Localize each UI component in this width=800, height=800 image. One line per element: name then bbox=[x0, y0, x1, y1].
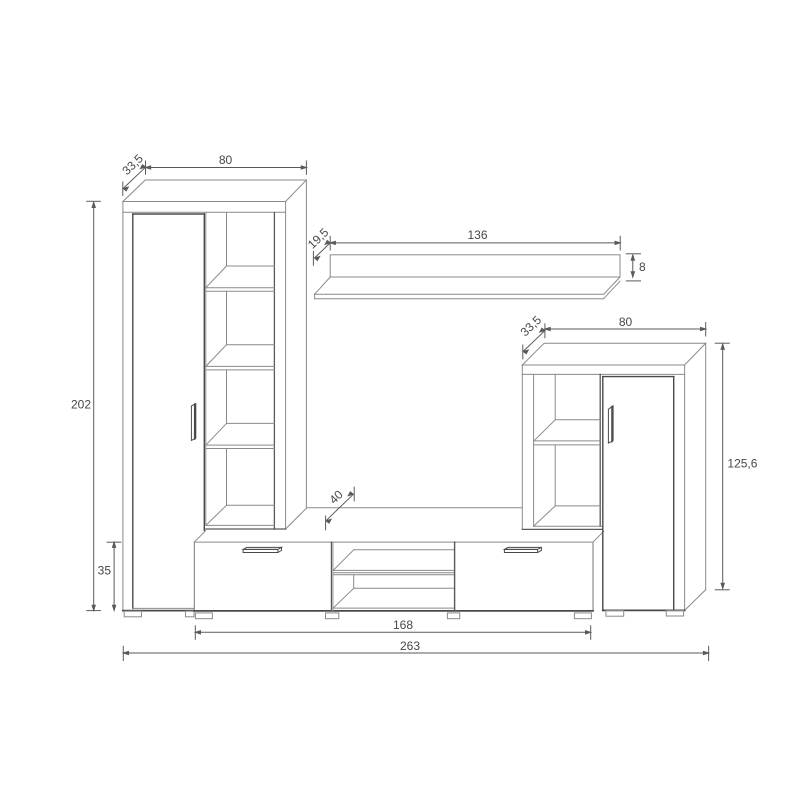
svg-text:136: 136 bbox=[467, 228, 487, 242]
svg-text:80: 80 bbox=[219, 153, 233, 167]
svg-text:202: 202 bbox=[71, 398, 91, 412]
svg-text:35: 35 bbox=[98, 564, 112, 578]
svg-text:80: 80 bbox=[619, 315, 633, 329]
svg-text:8: 8 bbox=[639, 260, 646, 274]
svg-text:263: 263 bbox=[400, 639, 420, 653]
svg-text:168: 168 bbox=[393, 618, 413, 632]
svg-text:125,6: 125,6 bbox=[727, 457, 757, 471]
